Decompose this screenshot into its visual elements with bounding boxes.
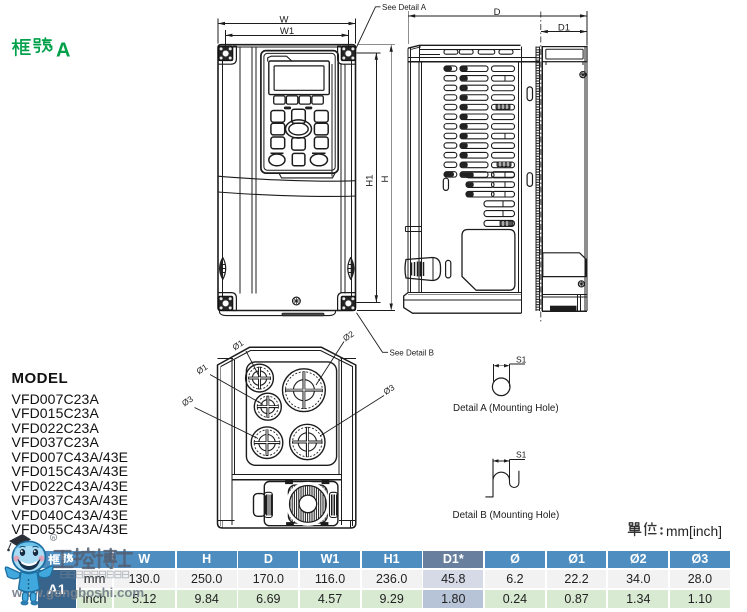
- svg-text:See Detail A: See Detail A: [382, 3, 427, 12]
- svg-text:Ø2: Ø2: [341, 329, 356, 344]
- svg-text:Ø3: Ø3: [180, 394, 195, 409]
- svg-text:H: H: [380, 175, 391, 182]
- svg-text:H1: H1: [365, 175, 376, 187]
- svg-text:mm[inch]: mm[inch]: [666, 524, 722, 539]
- svg-text:S1: S1: [516, 354, 527, 364]
- svg-text:W: W: [280, 14, 289, 25]
- svg-text:D: D: [494, 7, 501, 18]
- svg-text:D1: D1: [558, 22, 570, 33]
- svg-text:S1: S1: [516, 450, 527, 460]
- svg-text:W1: W1: [280, 26, 294, 37]
- svg-text:See Detail B: See Detail B: [390, 348, 434, 357]
- svg-text:A: A: [56, 40, 70, 62]
- svg-text:Detail A (Mounting Hole): Detail A (Mounting Hole): [453, 403, 559, 414]
- svg-text:Ø1: Ø1: [194, 362, 209, 377]
- svg-text:Ø3: Ø3: [381, 382, 396, 397]
- svg-text:Detail B (Mounting Hole): Detail B (Mounting Hole): [453, 510, 560, 521]
